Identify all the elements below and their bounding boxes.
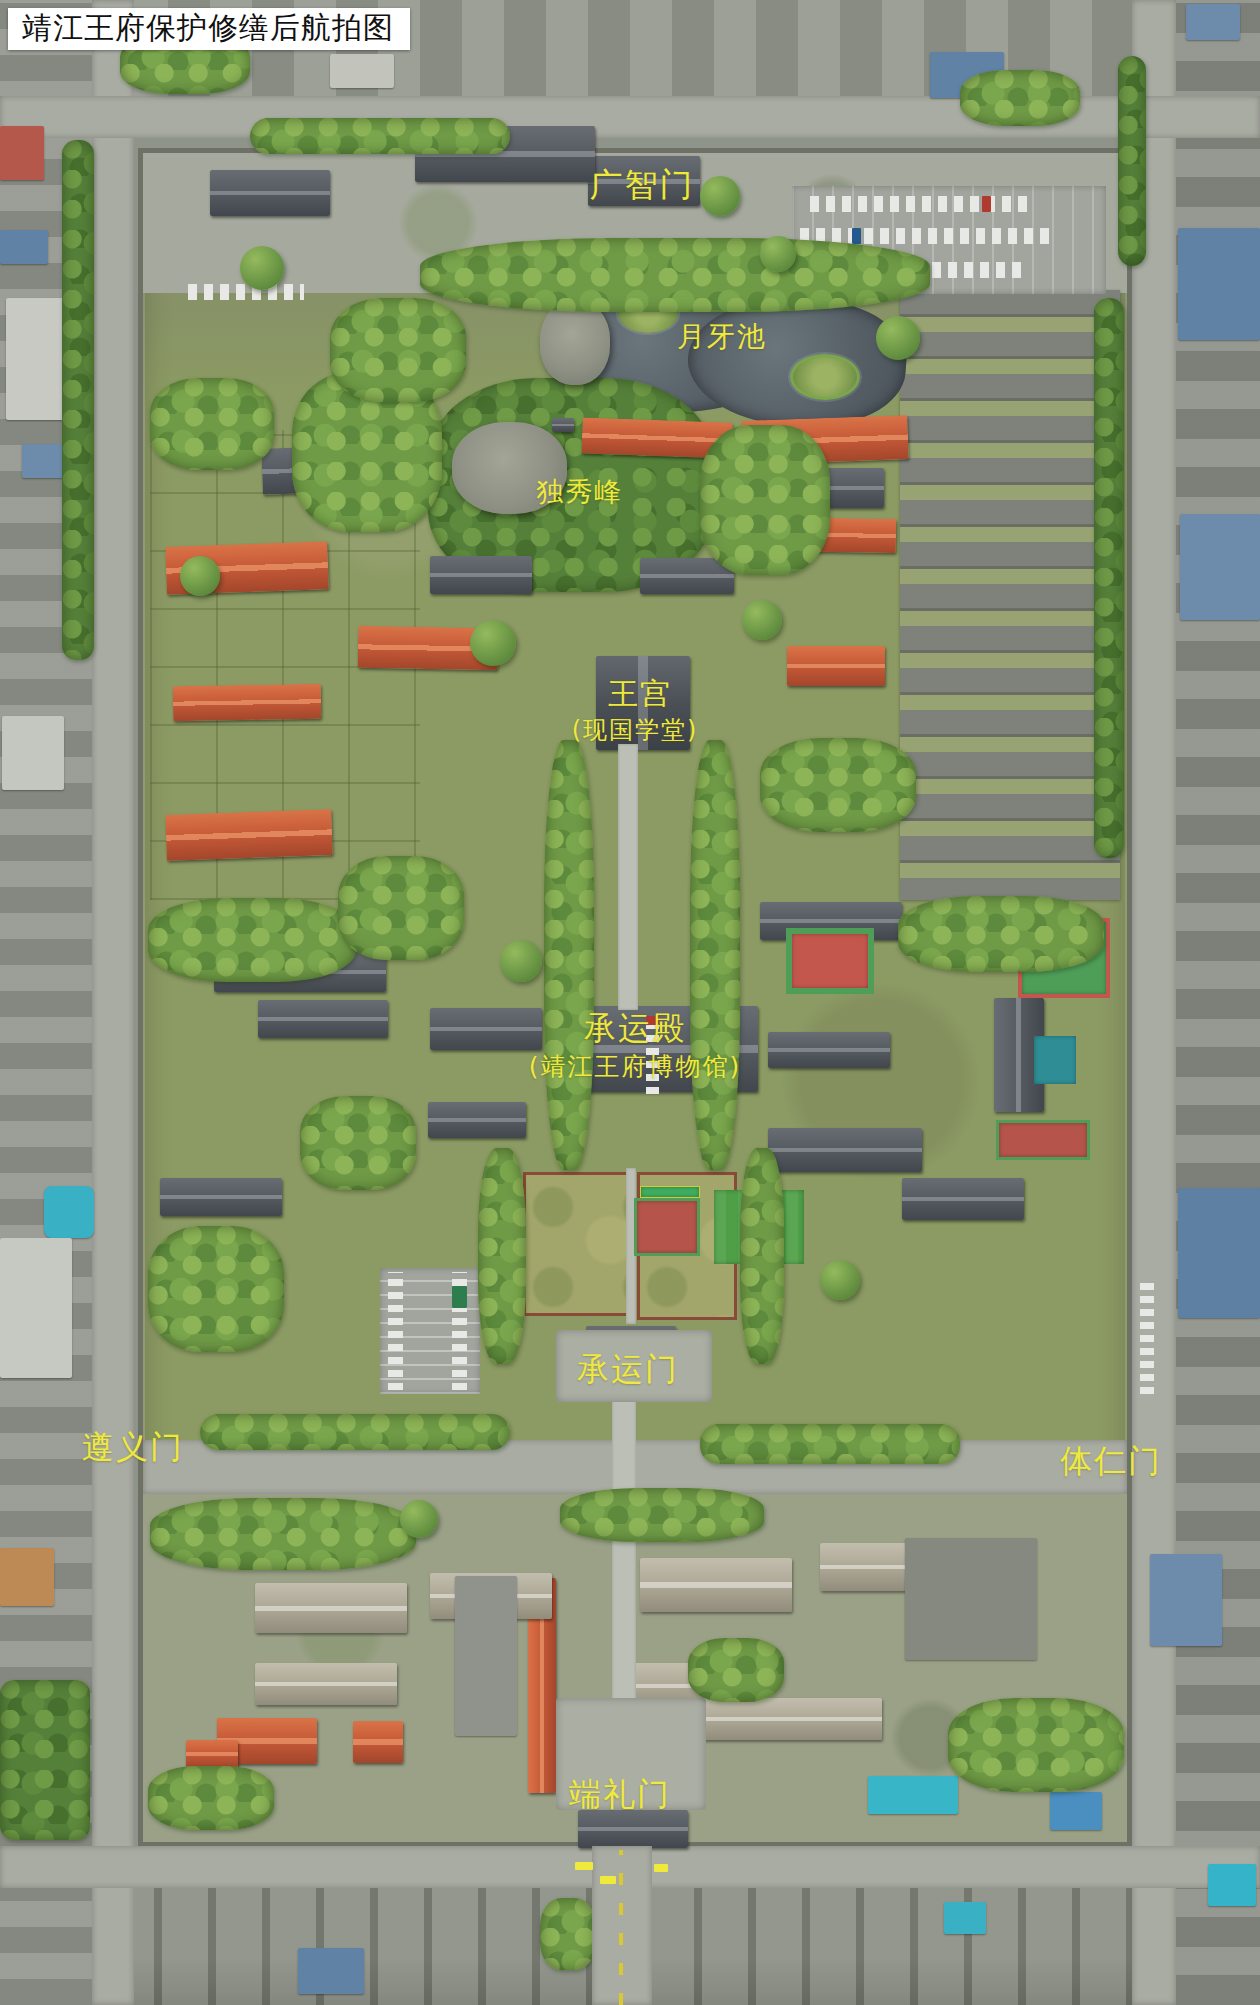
blue-roof-building [298,1948,364,1994]
orange-roof-building [787,646,885,686]
gray-roof-building [430,1008,542,1050]
parked-car-row [188,284,304,300]
green-canopy [640,1186,700,1198]
street-west [92,0,134,2005]
gray-complex [905,1538,1037,1660]
green-bus [452,1286,467,1308]
tree-grove [948,1698,1124,1792]
axis-tree-row [690,740,740,1170]
wall-tree-line [1094,298,1124,858]
orange-roof-building [165,809,333,861]
orange-roof-building [173,684,322,722]
gray-roof-building [902,1178,1024,1220]
pond-island-ring [790,354,860,400]
tree-grove [150,378,274,470]
street-tree-line [0,1680,90,1840]
road-marking [600,1876,616,1884]
gray-roof-building [428,1102,526,1138]
label-chengyunmen: 承运门 [577,1348,679,1392]
tree-grove [478,1148,526,1364]
label-tirenmen: 体仁门 [1060,1440,1162,1484]
light-building [330,54,394,88]
tree-grove [330,298,466,402]
blue-roof-building [1150,1554,1222,1646]
label-chengyundian: 承运殿 [584,1007,686,1051]
aerial-photo: 广智门 月牙池 独秀峰 王宫 (现国学堂) 承运殿 (靖江王府博物馆) 承运门 … [0,0,1260,2005]
tree [240,246,284,290]
tennis-courts [786,928,874,994]
gray-complex [455,1576,517,1736]
label-wanggong-sub: (现国学堂) [572,714,699,746]
road-tree-row [200,1414,510,1450]
light-building [0,1238,72,1378]
blue-roof-building [22,444,66,478]
tree [470,620,516,666]
gray-roof-building [258,1000,388,1038]
blue-roof-building [1178,1188,1260,1318]
street-tree-line [62,140,94,660]
tree-grove [540,1898,596,1970]
gray-roof-building [430,556,532,594]
label-duxiufeng: 独秀峰 [537,474,624,510]
parked-car-column [1140,1282,1154,1394]
label-zunyimen: 遵义门 [82,1426,184,1470]
red-car [982,196,991,212]
tree-grove [700,425,830,575]
red-courts [996,1120,1090,1160]
gray-roof-building [768,1032,890,1068]
street-east [1132,0,1176,2005]
tree [180,556,220,596]
tan-roof-building [255,1663,397,1705]
east-row-buildings [900,290,1120,900]
tree-grove [148,1226,284,1352]
axis-path [618,744,638,1010]
road-marking [654,1864,668,1872]
blue-roof-building [1180,514,1260,620]
tree-grove [420,238,930,312]
street-tree-line [1118,56,1146,266]
peak-rock-north [540,300,610,385]
parked-car-row [810,196,1030,212]
label-yueyachi: 月牙池 [677,318,767,356]
tan-building [0,1548,54,1606]
tree-grove [960,70,1080,126]
gray-roof-building [160,1178,282,1216]
tree [760,236,796,272]
tree [400,1500,438,1538]
peak-pavilion [552,418,574,432]
tree-grove [740,1148,784,1364]
gray-roof-building [210,170,330,216]
blue-tarp [1050,1792,1102,1830]
label-wanggong: 王宫 [608,674,672,715]
label-duanlimen: 端礼门 [569,1773,671,1817]
blue-roof-building [1186,4,1240,40]
gray-roof-building [768,1128,922,1172]
basketball-courts [634,1198,700,1256]
orange-roof-building [186,1740,238,1768]
tree-grove [760,738,916,832]
tree-grove [300,1096,416,1190]
label-guangzhimen: 广智门 [590,163,695,208]
tree-grove [560,1488,764,1542]
tree-grove [688,1638,784,1702]
light-building [6,298,64,420]
light-tower [2,716,64,790]
cyan-tarp [868,1776,958,1814]
tree [500,940,542,982]
tree-grove [898,896,1104,972]
road-marking [575,1862,593,1870]
tree [876,316,920,360]
tree [820,1260,860,1300]
axis-tree-row [544,740,594,1170]
tree-grove [338,856,464,960]
west-lawn [523,1172,629,1316]
blue-car [852,228,861,244]
teal-court [1034,1036,1076,1084]
tan-roof-building [700,1698,882,1740]
red-roof-building [0,126,44,180]
road-tree-row [700,1424,960,1464]
tan-roof-building [255,1583,407,1633]
tree [742,600,782,640]
tree-grove [250,118,510,154]
label-chengyundian-sub: (靖江王府博物馆) [529,1050,742,1083]
photo-title: 靖江王府保护修缮后航拍图 [8,8,410,50]
cyan-roof-building [944,1902,986,1934]
tree-grove [148,898,356,982]
road-center-line [619,1850,623,2005]
tree-grove [150,1498,416,1570]
blue-roof-building [1178,228,1260,340]
blue-roof-building [0,230,48,264]
parked-car-column [388,1272,403,1390]
tan-roof-building [640,1558,792,1612]
orange-roof-building [353,1721,403,1763]
tree-grove [148,1766,274,1830]
tree [700,176,740,216]
pool-cyan [44,1186,94,1238]
cyan-roof-building [1208,1864,1256,1906]
